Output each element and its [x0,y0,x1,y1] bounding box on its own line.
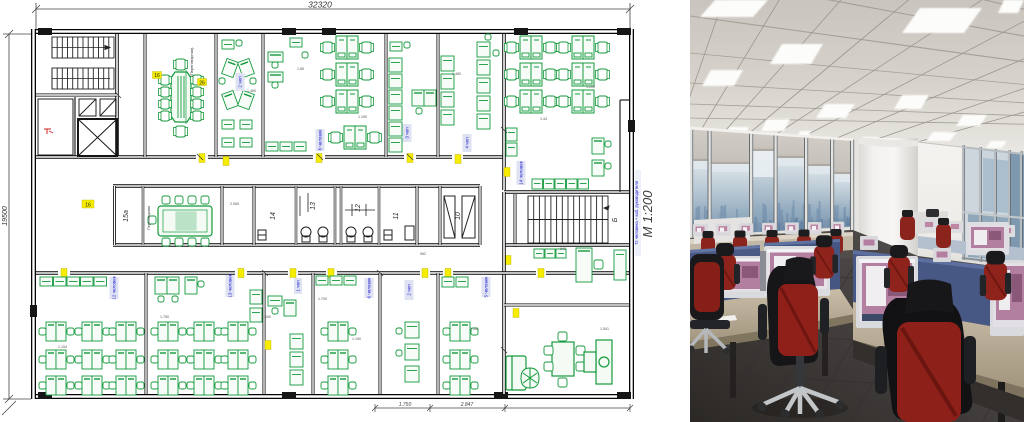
svg-text:2.847: 2.847 [460,402,474,408]
svg-text:10: 10 [455,212,462,220]
svg-text:32320: 32320 [308,0,332,10]
svg-text:1.480: 1.480 [247,89,256,93]
svg-text:1.700: 1.700 [318,297,327,301]
svg-text:Б: Б [612,217,619,222]
svg-text:19500: 19500 [2,206,9,226]
svg-text:26: 26 [199,81,205,87]
svg-text:1 чел: 1 чел [296,280,301,292]
svg-text:11: 11 [393,212,400,219]
svg-text:16: 16 [85,203,91,209]
svg-text:4 чел: 4 чел [465,137,470,149]
svg-text:12: 12 [355,204,362,212]
svg-text:13 человек: 13 человек [228,273,233,297]
svg-text:1.541: 1.541 [600,327,609,331]
svg-text:13: 13 [310,202,317,210]
svg-text:14: 14 [270,212,277,220]
svg-text:1.151: 1.151 [470,327,479,331]
svg-text:2 чел: 2 чел [238,76,243,88]
svg-text:1.750: 1.750 [399,402,412,408]
svg-text:(Переговорная): (Переговорная) [189,47,194,77]
svg-text:1.480: 1.480 [452,72,461,76]
svg-text:6 человек: 6 человек [367,277,372,299]
svg-text:1.85: 1.85 [297,67,304,71]
svg-text:12 человек: 12 человек [112,275,117,299]
svg-text:М 1:200: М 1:200 [640,190,655,238]
svg-text:1.190: 1.190 [352,337,361,341]
svg-text:1.750: 1.750 [160,315,169,319]
svg-text:8 человек: 8 человек [318,129,323,151]
svg-text:2.065: 2.065 [230,202,239,206]
svg-text:72 человека + каб. руководител: 72 человека + каб. руководителя [634,181,639,245]
svg-text:5 человек: 5 человек [484,276,489,298]
svg-text:16: 16 [154,73,160,79]
svg-text:1.190: 1.190 [262,315,271,319]
svg-text:14 человек: 14 человек [519,160,524,184]
svg-text:15а: 15а [123,210,130,222]
svg-text:1.154: 1.154 [58,345,67,349]
svg-text:Переговорная: Переговорная [147,206,151,230]
svg-text:2 чел: 2 чел [407,284,412,296]
svg-text:1.190: 1.190 [358,115,367,119]
svg-text:3 чел: 3 чел [405,127,410,139]
svg-text:1.44: 1.44 [540,117,547,121]
svg-text:1.200: 1.200 [586,85,595,89]
svg-text:940: 940 [560,247,566,251]
svg-text:962: 962 [420,252,426,256]
